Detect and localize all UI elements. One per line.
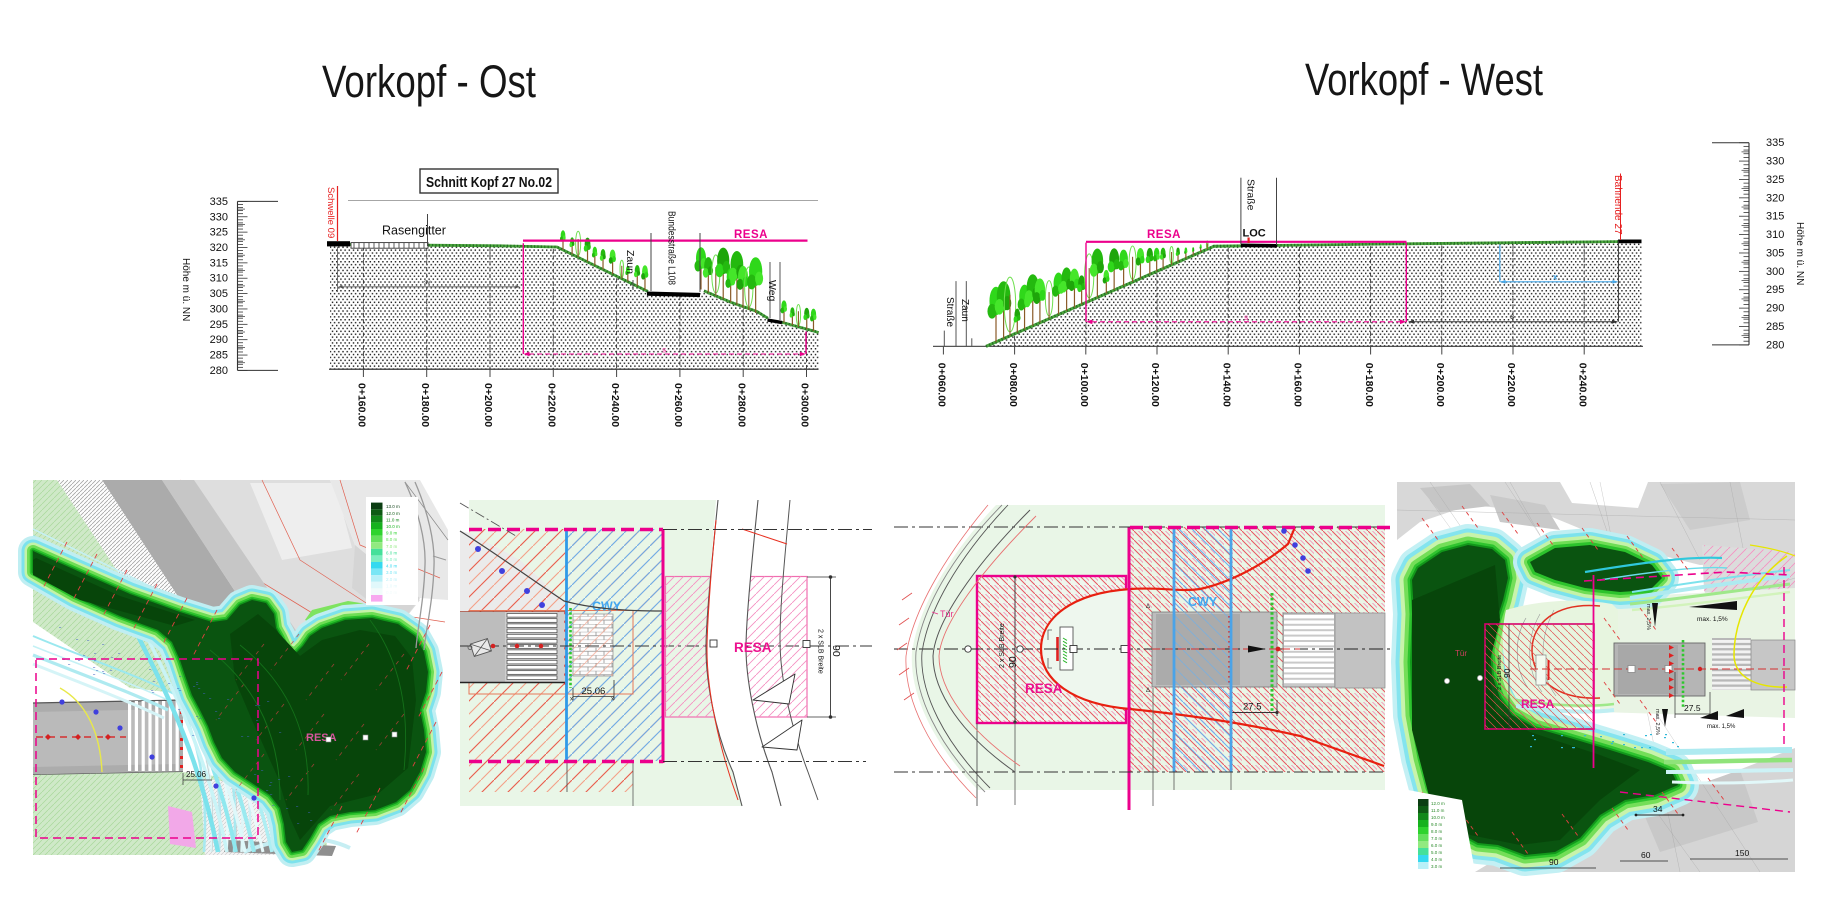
svg-text:315: 315 [1766,211,1784,223]
svg-text:295: 295 [1766,284,1784,296]
svg-text:Tür: Tür [940,609,954,619]
svg-text:CWY: CWY [1188,595,1218,609]
svg-text:290: 290 [210,334,228,346]
svg-text:7.0 m: 7.0 m [386,544,398,549]
svg-text:4.0 m: 4.0 m [1431,857,1443,862]
svg-text:Straße: Straße [1245,179,1257,211]
svg-text:285: 285 [1766,321,1784,333]
svg-text:0+060.00: 0+060.00 [936,363,948,407]
svg-text:8.0 m: 8.0 m [386,537,398,542]
svg-text:3.0 m: 3.0 m [1431,864,1443,869]
svg-text:90: 90 [1502,668,1512,678]
svg-text:310: 310 [210,273,228,285]
svg-text:RESA: RESA [1521,697,1555,711]
svg-text:300: 300 [210,303,228,315]
svg-text:1.0 m: 1.0 m [386,583,398,588]
svg-text:0+240.00: 0+240.00 [609,383,621,427]
svg-text:s: s [662,346,667,355]
svg-text:Zaun: Zaun [624,250,636,274]
svg-text:0+200.00: 0+200.00 [482,383,494,427]
svg-text:0+140.00: 0+140.00 [1220,363,1232,407]
svg-text:Höhe m ü. NN: Höhe m ü. NN [180,258,191,321]
svg-text:0+220.00: 0+220.00 [1505,363,1517,407]
svg-text:280: 280 [210,365,228,377]
svg-text:Straße: Straße [944,297,955,327]
svg-text:x: x [611,697,614,703]
svg-text:310: 310 [1766,229,1784,241]
svg-text:sv: sv [424,279,431,286]
svg-text:10.0 m: 10.0 m [386,524,400,529]
svg-text:Vorkopf - West: Vorkopf - West [1305,54,1543,105]
svg-text:Bahnende 27: Bahnende 27 [1612,175,1623,235]
svg-text:LOC: LOC [1243,228,1266,240]
svg-text:Δ: Δ [1146,604,1150,610]
svg-text:Höhe m ü. NN: Höhe m ü. NN [1794,222,1805,285]
svg-text:10.0 m: 10.0 m [1431,815,1445,820]
svg-text:5.0 m: 5.0 m [386,557,398,562]
svg-text:11.0 m: 11.0 m [1431,808,1445,813]
svg-text:335: 335 [1766,137,1784,149]
svg-text:13.0 m: 13.0 m [386,504,400,509]
svg-text:RESA: RESA [734,640,772,655]
svg-text:325: 325 [1766,174,1784,186]
svg-text:2.0 m: 2.0 m [386,577,398,582]
svg-text:25.06: 25.06 [582,686,606,697]
svg-text:max. 2,5%: max. 2,5% [1645,604,1651,630]
svg-text:90: 90 [1549,857,1559,867]
svg-text:0+260.00: 0+260.00 [672,383,684,427]
svg-text:335: 335 [210,196,228,208]
svg-text:285: 285 [210,350,228,362]
svg-text:Rasengitter: Rasengitter [382,224,446,238]
svg-text:max. 2,5%: max. 2,5% [1654,709,1660,735]
svg-text:315: 315 [210,257,228,269]
svg-text:2 x SLB Breite: 2 x SLB Breite [999,623,1006,668]
svg-text:0+300.00: 0+300.00 [799,383,811,427]
svg-text:6.0 m: 6.0 m [1431,843,1443,848]
svg-text:RESA: RESA [734,229,768,241]
svg-text:max. 1,5%: max. 1,5% [1707,724,1736,730]
svg-text:0+180.00: 0+180.00 [419,383,431,427]
svg-text:0+220.00: 0+220.00 [546,383,558,427]
svg-text:3.0 m: 3.0 m [386,570,398,575]
svg-text:12.0 m: 12.0 m [1431,801,1445,806]
svg-text:150: 150 [1735,848,1749,858]
svg-text:60: 60 [1641,850,1651,860]
svg-text:305: 305 [1766,247,1784,259]
svg-text:Bundesstraße L108: Bundesstraße L108 [666,211,677,285]
svg-text:0+240.00: 0+240.00 [1576,363,1588,407]
svg-text:325: 325 [210,227,228,239]
svg-text:Schwelle 09: Schwelle 09 [325,187,336,238]
svg-text:295: 295 [210,319,228,331]
svg-text:max. 1,5%: max. 1,5% [1697,616,1728,623]
svg-text:0+120.00: 0+120.00 [1149,363,1161,407]
svg-text:s: s [1510,312,1515,321]
svg-text:Vorkopf - Ost: Vorkopf - Ost [322,56,536,107]
svg-text:RESA: RESA [306,732,337,744]
svg-text:8.0 m: 8.0 m [1431,829,1443,834]
svg-text:5.0 m: 5.0 m [1431,850,1443,855]
svg-text:7.0 m: 7.0 m [1431,836,1443,841]
svg-text:11.0 m: 11.0 m [386,517,400,522]
svg-text:0+160.00: 0+160.00 [356,383,368,427]
svg-text:0.0 m: 0.0 m [386,590,398,595]
svg-text:s: s [1244,313,1249,322]
svg-text:90: 90 [830,645,842,657]
svg-text:6.0 m: 6.0 m [386,550,398,555]
svg-text:330: 330 [1766,156,1784,168]
svg-text:4.0 m: 4.0 m [386,564,398,569]
svg-text:0+280.00: 0+280.00 [735,383,747,427]
svg-text:25.06: 25.06 [186,770,207,779]
svg-text:90: 90 [1007,656,1019,668]
svg-text:0+200.00: 0+200.00 [1434,363,1446,407]
svg-text:320: 320 [210,242,228,254]
svg-text:0+080.00: 0+080.00 [1007,363,1019,407]
svg-text:9.0 m: 9.0 m [1431,822,1443,827]
svg-text:Δ: Δ [1146,688,1150,694]
svg-text:x: x [570,697,573,703]
svg-text:300: 300 [1766,266,1784,278]
svg-text:CWY: CWY [592,600,622,614]
svg-text:34: 34 [1653,804,1663,814]
svg-text:Schnitt Kopf 27 No.02: Schnitt Kopf 27 No.02 [426,174,552,191]
svg-text:RESA: RESA [1025,681,1063,696]
svg-text:27.5: 27.5 [1684,703,1701,713]
svg-text:12.0 m: 12.0 m [386,511,400,516]
svg-text:290: 290 [1766,303,1784,315]
svg-text:330: 330 [210,211,228,223]
svg-text:RESA: RESA [1147,229,1181,241]
svg-text:0+180.00: 0+180.00 [1363,363,1375,407]
svg-text:0+160.00: 0+160.00 [1292,363,1304,407]
svg-text:27.5: 27.5 [1243,702,1262,713]
svg-text:2 x SLB Breite: 2 x SLB Breite [817,629,824,674]
svg-text:Zaun: Zaun [959,299,970,322]
svg-text:x: x [1553,273,1558,282]
svg-text:Weg: Weg [766,280,778,302]
svg-text:9.0 m: 9.0 m [386,531,398,536]
svg-text:Tür: Tür [1455,649,1467,658]
svg-text:0+100.00: 0+100.00 [1078,363,1090,407]
svg-text:320: 320 [1766,192,1784,204]
svg-text:305: 305 [210,288,228,300]
svg-text:280: 280 [1766,339,1784,351]
